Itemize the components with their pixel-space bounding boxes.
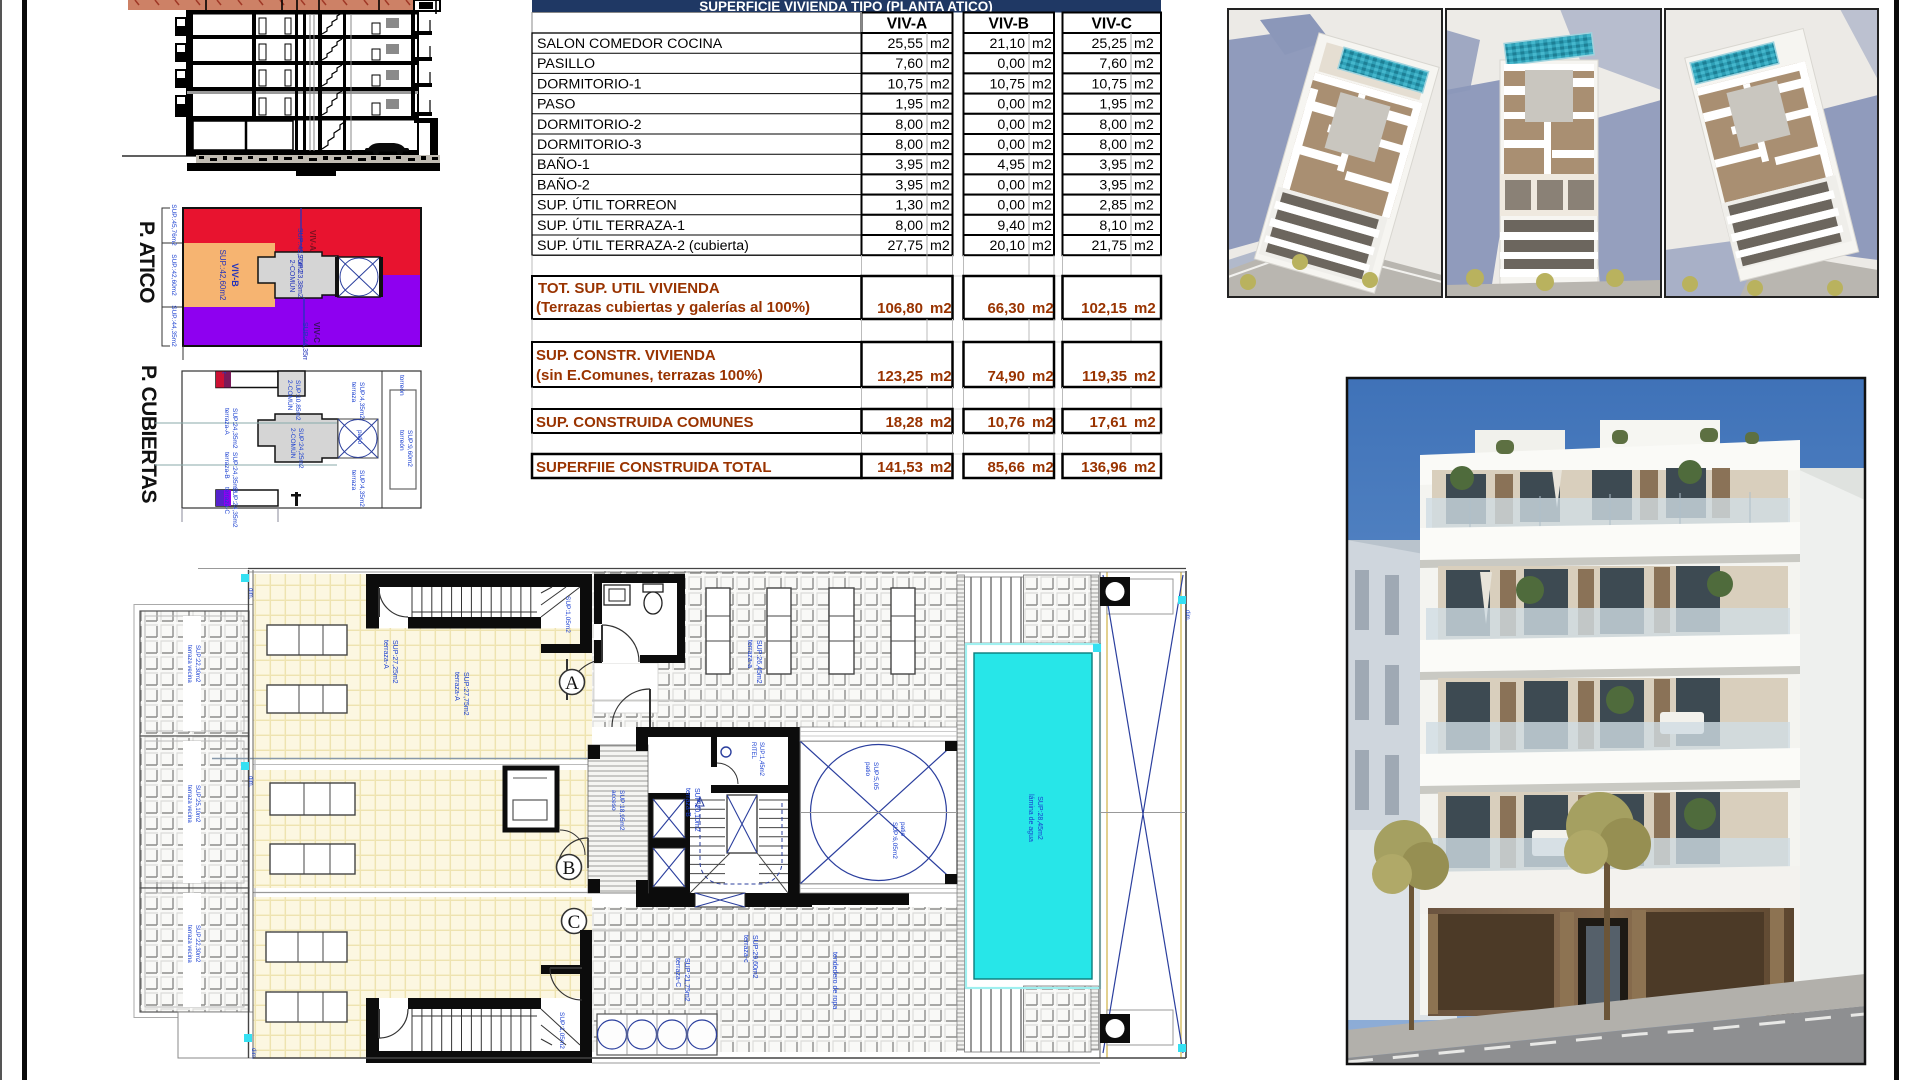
svg-text:SUP:18,95m2: SUP:18,95m2 — [618, 790, 625, 831]
svg-text:3,95: 3,95 — [1099, 177, 1127, 193]
svg-text:7,60: 7,60 — [895, 56, 923, 72]
svg-text:85,66: 85,66 — [987, 459, 1025, 476]
svg-text:66,30: 66,30 — [987, 300, 1025, 317]
svg-text:0,00: 0,00 — [997, 117, 1025, 133]
svg-text:A: A — [565, 673, 579, 694]
svg-text:SUP:27,75m2: SUP:27,75m2 — [462, 672, 469, 716]
svg-text:SUP. ÚTIL TERRAZA-1: SUP. ÚTIL TERRAZA-1 — [537, 217, 685, 234]
svg-text:SALON COMEDOR COCINA: SALON COMEDOR COCINA — [537, 36, 723, 52]
svg-text:123,25: 123,25 — [877, 368, 923, 385]
svg-text:terraza vecina: terraza vecina — [186, 785, 192, 823]
svg-text:8,00: 8,00 — [895, 137, 923, 153]
svg-text:SUP. CONSTR. VIVIENDA: SUP. CONSTR. VIVIENDA — [536, 347, 716, 364]
svg-text:(sin E.Comunes, terrazas 100%): (sin E.Comunes, terrazas 100%) — [536, 367, 763, 384]
svg-text:dim.: dim. — [1184, 610, 1190, 622]
svg-text:B: B — [563, 858, 576, 879]
svg-text:m2: m2 — [1134, 76, 1154, 92]
svg-text:m2: m2 — [930, 56, 950, 72]
svg-text:SUP:1,05m2: SUP:1,05m2 — [558, 1012, 565, 1049]
svg-text:4,95: 4,95 — [997, 157, 1025, 173]
svg-text:VIV-C: VIV-C — [1092, 16, 1132, 33]
svg-text:m2: m2 — [1032, 368, 1054, 385]
svg-text:1,30: 1,30 — [895, 198, 923, 214]
svg-text:SUP:1,05m2: SUP:1,05m2 — [564, 596, 571, 633]
svg-text:m2: m2 — [1134, 368, 1156, 385]
svg-text:m2: m2 — [1134, 300, 1156, 317]
svg-text:0,00: 0,00 — [997, 137, 1025, 153]
svg-text:m2: m2 — [1134, 459, 1156, 476]
svg-text:terraza vecina: terraza vecina — [186, 645, 192, 683]
svg-text:SUP:25,10m2: SUP:25,10m2 — [194, 785, 200, 823]
svg-text:lámina de agua: lámina de agua — [1027, 794, 1034, 842]
svg-text:136,96: 136,96 — [1081, 459, 1127, 476]
svg-text:m2: m2 — [930, 414, 952, 431]
svg-text:m2: m2 — [1032, 117, 1052, 133]
svg-text:SUP:5,05: SUP:5,05 — [872, 762, 879, 790]
svg-text:m2: m2 — [1032, 218, 1052, 234]
svg-text:21,75: 21,75 — [1091, 238, 1127, 254]
svg-text:terraza-A: terraza-A — [223, 408, 230, 435]
svg-text:terraza-c: terraza-c — [742, 935, 749, 963]
svg-text:1,95: 1,95 — [1099, 97, 1127, 113]
svg-text:tendedero de ropa: tendedero de ropa — [831, 952, 838, 1009]
svg-text:terraza: terraza — [350, 382, 357, 403]
svg-text:2,85: 2,85 — [1099, 198, 1127, 214]
svg-text:BAÑO-2: BAÑO-2 — [537, 176, 590, 193]
svg-text:SUP:24,25m2: SUP:24,25m2 — [297, 428, 304, 469]
svg-text:m2: m2 — [930, 368, 952, 385]
svg-text:SUP:22,30m2: SUP:22,30m2 — [194, 645, 200, 683]
svg-text:18,28: 18,28 — [885, 414, 923, 431]
svg-text:SUP. ÚTIL TORREON: SUP. ÚTIL TORREON — [537, 197, 677, 214]
svg-text:m2: m2 — [1134, 36, 1154, 52]
svg-text:m2: m2 — [1032, 238, 1052, 254]
svg-text:patio: patio — [864, 762, 871, 776]
svg-text:SUP:26,45m2: SUP:26,45m2 — [755, 640, 762, 684]
svg-text:10,76: 10,76 — [987, 414, 1025, 431]
svg-text:17,61: 17,61 — [1089, 414, 1127, 431]
svg-text:10,75: 10,75 — [887, 76, 923, 92]
svg-text:m2: m2 — [930, 137, 950, 153]
svg-text:2-COMÚN: 2-COMÚN — [286, 380, 295, 411]
svg-text:SUP.:42,60m2: SUP.:42,60m2 — [218, 250, 227, 302]
svg-text:m2: m2 — [930, 157, 950, 173]
svg-text:VIV-B: VIV-B — [989, 16, 1029, 33]
svg-text:m2: m2 — [930, 76, 950, 92]
svg-text:m2: m2 — [1134, 198, 1154, 214]
svg-text:DORMITORIO-2: DORMITORIO-2 — [537, 117, 642, 133]
svg-text:m2: m2 — [1134, 157, 1154, 173]
svg-text:VIV-A: VIV-A — [308, 230, 317, 251]
svg-text:dim.: dim. — [250, 1048, 256, 1060]
svg-text:20,10: 20,10 — [989, 238, 1025, 254]
svg-text:102,15: 102,15 — [1081, 300, 1127, 317]
svg-text:SUP:23,38m2: SUP:23,38m2 — [296, 254, 303, 298]
svg-text:patio: patio — [356, 430, 363, 444]
svg-text:SUP:28,45m2: SUP:28,45m2 — [1036, 796, 1043, 840]
svg-text:m2: m2 — [930, 300, 952, 317]
svg-text:1,95: 1,95 — [895, 97, 923, 113]
svg-text:m2: m2 — [1032, 36, 1052, 52]
svg-text:m2: m2 — [1032, 157, 1052, 173]
svg-text:SUPERFIIE CONSTRUIDA TOTAL: SUPERFIIE CONSTRUIDA TOTAL — [536, 459, 772, 476]
svg-text:m2: m2 — [1032, 300, 1054, 317]
svg-text:27,75: 27,75 — [887, 238, 923, 254]
svg-text:SUP:24,35m2: SUP:24,35m2 — [231, 487, 238, 528]
svg-text:0,00: 0,00 — [997, 56, 1025, 72]
svg-text:m2: m2 — [1134, 137, 1154, 153]
svg-text:m2: m2 — [1134, 56, 1154, 72]
svg-text:terraza: terraza — [350, 470, 357, 491]
svg-text:terraza vecina: terraza vecina — [186, 925, 192, 963]
svg-text:0,00: 0,00 — [997, 198, 1025, 214]
svg-text:SUP:20,10m2: SUP:20,10m2 — [693, 788, 700, 832]
svg-text:dim.: dim. — [247, 776, 253, 788]
svg-text:SUP:4,35m2: SUP:4,35m2 — [358, 470, 365, 507]
svg-text:SUP:22,30m2: SUP:22,30m2 — [194, 925, 200, 963]
svg-text:VIV-A: VIV-A — [887, 16, 927, 33]
svg-text:acceso: acceso — [610, 790, 617, 811]
svg-text:SUP. CONSTRUIDA COMUNES: SUP. CONSTRUIDA COMUNES — [536, 414, 754, 431]
svg-text:25,55: 25,55 — [887, 36, 923, 52]
svg-text:3,95: 3,95 — [895, 157, 923, 173]
svg-text:10,75: 10,75 — [989, 76, 1025, 92]
svg-text:m2: m2 — [1134, 218, 1154, 234]
svg-text:TOT. SUP. UTIL VIVIENDA: TOT. SUP. UTIL VIVIENDA — [538, 280, 720, 297]
svg-text:141,53: 141,53 — [877, 459, 923, 476]
svg-text:SUP.:45,76m2: SUP.:45,76m2 — [170, 204, 177, 246]
svg-text:m2: m2 — [930, 117, 950, 133]
svg-text:dim.: dim. — [247, 588, 253, 600]
svg-text:SUP:27,25m2: SUP:27,25m2 — [391, 640, 398, 684]
svg-text:DORMITORIO-1: DORMITORIO-1 — [537, 76, 642, 92]
svg-text:SUP:24,35m2: SUP:24,35m2 — [231, 408, 238, 449]
svg-text:terraza-B: terraza-B — [684, 788, 691, 817]
svg-text:m2: m2 — [1134, 177, 1154, 193]
svg-text:m2: m2 — [930, 177, 950, 193]
svg-text:PASILLO: PASILLO — [537, 56, 595, 72]
svg-text:patio: patio — [899, 822, 906, 836]
svg-text:m2: m2 — [930, 198, 950, 214]
svg-text:SUP:1,45m2: SUP:1,45m2 — [758, 742, 764, 777]
svg-text:m2: m2 — [1032, 137, 1052, 153]
svg-text:m2: m2 — [1032, 76, 1052, 92]
svg-text:m2: m2 — [930, 459, 952, 476]
svg-text:m2: m2 — [1032, 177, 1052, 193]
svg-text:119,35: 119,35 — [1082, 368, 1127, 385]
svg-text:3,95: 3,95 — [1099, 157, 1127, 173]
svg-text:8,00: 8,00 — [1099, 137, 1127, 153]
svg-text:SUP:29,60m2: SUP:29,60m2 — [751, 935, 758, 979]
svg-text:9,40: 9,40 — [997, 218, 1025, 234]
svg-text:m2: m2 — [1134, 117, 1154, 133]
svg-text:m2: m2 — [1134, 238, 1154, 254]
svg-text:torreón: torreón — [398, 430, 405, 451]
svg-text:SUP:10,85m2: SUP:10,85m2 — [294, 380, 301, 421]
svg-text:VIV-C: VIV-C — [312, 322, 321, 343]
svg-text:terraza-A: terraza-A — [382, 640, 389, 669]
svg-text:VIV-B: VIV-B — [230, 263, 240, 287]
svg-text:8,00: 8,00 — [895, 117, 923, 133]
svg-text:m2: m2 — [1032, 56, 1052, 72]
svg-text:2-COMÚN: 2-COMÚN — [289, 428, 298, 459]
svg-text:8,10: 8,10 — [1099, 218, 1127, 234]
svg-text:SUP:6,05m2: SUP:6,05m2 — [891, 822, 898, 859]
svg-text:8,00: 8,00 — [1099, 117, 1127, 133]
svg-text:8,00: 8,00 — [895, 218, 923, 234]
svg-text:21,10: 21,10 — [989, 36, 1025, 52]
svg-text:terraza-B: terraza-B — [223, 452, 230, 479]
svg-text:m2: m2 — [1032, 198, 1052, 214]
svg-text:terraza-C: terraza-C — [223, 487, 230, 514]
svg-text:m2: m2 — [930, 218, 950, 234]
svg-text:P. ATICO: P. ATICO — [135, 221, 158, 303]
svg-text:C: C — [568, 912, 581, 933]
svg-text:torreón: torreón — [398, 375, 405, 396]
svg-text:0,00: 0,00 — [997, 97, 1025, 113]
svg-text:m2: m2 — [930, 36, 950, 52]
svg-text:(Terrazas cubiertas y galerías: (Terrazas cubiertas y galerías al 100%) — [536, 299, 810, 316]
svg-text:m2: m2 — [1134, 97, 1154, 113]
svg-text:m2: m2 — [1032, 414, 1054, 431]
svg-text:m2: m2 — [1032, 459, 1054, 476]
svg-text:2-COMÚN: 2-COMÚN — [288, 260, 297, 293]
svg-text:terraza-C: terraza-C — [674, 958, 681, 987]
svg-text:25,25: 25,25 — [1091, 36, 1127, 52]
svg-text:t: t — [220, 372, 227, 374]
svg-text:m2: m2 — [1134, 414, 1156, 431]
svg-text:terraza-a: terraza-a — [746, 640, 753, 668]
svg-text:3,95: 3,95 — [895, 177, 923, 193]
svg-text:SUP. ÚTIL TERRAZA-2 (cubierta): SUP. ÚTIL TERRAZA-2 (cubierta) — [537, 237, 749, 254]
svg-text:BAÑO-1: BAÑO-1 — [537, 156, 590, 173]
svg-text:terraza-A: terraza-A — [453, 672, 460, 701]
svg-text:m2: m2 — [1032, 97, 1052, 113]
svg-text:SUP:9,60m2: SUP:9,60m2 — [406, 430, 413, 467]
svg-text:SUP.:44,35m2: SUP.:44,35m2 — [170, 305, 177, 347]
svg-text:P. CUBIERTAS: P. CUBIERTAS — [137, 365, 160, 503]
svg-text:106,80: 106,80 — [877, 300, 923, 317]
svg-text:m2: m2 — [930, 97, 950, 113]
svg-text:0,00: 0,00 — [997, 177, 1025, 193]
svg-text:SUP.:42,60m2: SUP.:42,60m2 — [170, 254, 177, 296]
svg-text:74,90: 74,90 — [987, 368, 1025, 385]
svg-text:SUP:4,35m2: SUP:4,35m2 — [358, 382, 365, 419]
svg-text:PASO: PASO — [537, 97, 575, 113]
svg-text:DORMITORIO-3: DORMITORIO-3 — [537, 137, 642, 153]
svg-text:m2: m2 — [930, 238, 950, 254]
svg-text:10,75: 10,75 — [1091, 76, 1127, 92]
svg-text:SUP:21,75m2: SUP:21,75m2 — [683, 958, 690, 1002]
svg-text:7,60: 7,60 — [1099, 56, 1127, 72]
svg-text:RITEL: RITEL — [750, 742, 756, 760]
